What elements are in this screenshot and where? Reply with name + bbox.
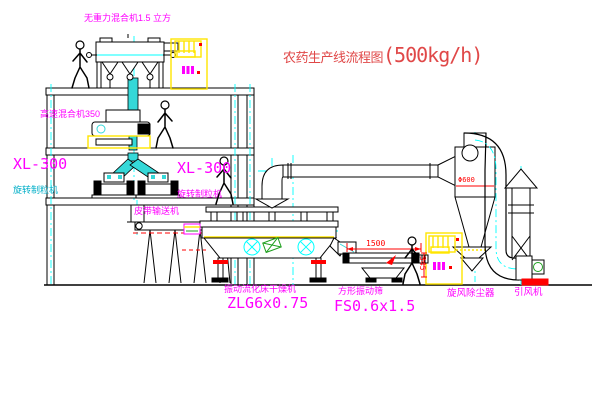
cyclone-drawing (453, 133, 495, 271)
exhaust-stack-drawing (505, 169, 537, 260)
label-top-mixer: 无重力混合机1.5 立方 (84, 14, 171, 23)
label-granulator-right-model: XL-300 (177, 161, 231, 176)
pesticide-line-flow-diagram: 无重力混合机1.5 立方 农药生产线流程图 (500kg/h) 高速混合机350… (0, 0, 600, 403)
dryer-exhaust-duct (256, 156, 456, 208)
title-capacity: (500kg/h) (383, 45, 482, 65)
title-text: 农药生产线流程图 (283, 51, 383, 64)
label-cyclone: 旋风除尘器 (447, 289, 495, 299)
worker-top-floor (72, 41, 89, 88)
worker-second-floor (156, 101, 173, 148)
vibrating-sieve-drawing (338, 242, 428, 282)
dimension-cyclone-diameter: Φ600 (458, 177, 475, 184)
label-belt-conveyor: 皮带输送机 (134, 207, 179, 216)
control-cabinet-2 (426, 233, 462, 284)
label-high-speed-mixer: 高速混合机350 (40, 110, 100, 119)
dryer-feed-box (184, 224, 200, 234)
granulator-right-drawing (136, 173, 180, 198)
diagram-title: 农药生产线流程图 (500kg/h) (283, 45, 482, 65)
dimension-sieve-length: 1500 (366, 240, 385, 248)
label-dryer-name: 振动流化床干燥机 (224, 285, 296, 294)
label-dryer-model: ZLG6x0.75 (227, 296, 308, 311)
granulator-left-drawing (92, 173, 136, 198)
dimension-sieve-height: 345 (418, 256, 426, 270)
label-granulator-right-name: 旋转制粒机 (177, 190, 222, 199)
label-granulator-left-model: XL-300 (13, 157, 67, 172)
label-sieve-model: FS0.6x1.5 (334, 299, 415, 314)
label-fan: 引风机 (514, 288, 543, 298)
label-sieve-name: 方形振动筛 (338, 287, 383, 296)
fluid-bed-dryer-drawing (182, 207, 346, 282)
label-granulator-left-name: 旋转制粒机 (13, 186, 58, 195)
